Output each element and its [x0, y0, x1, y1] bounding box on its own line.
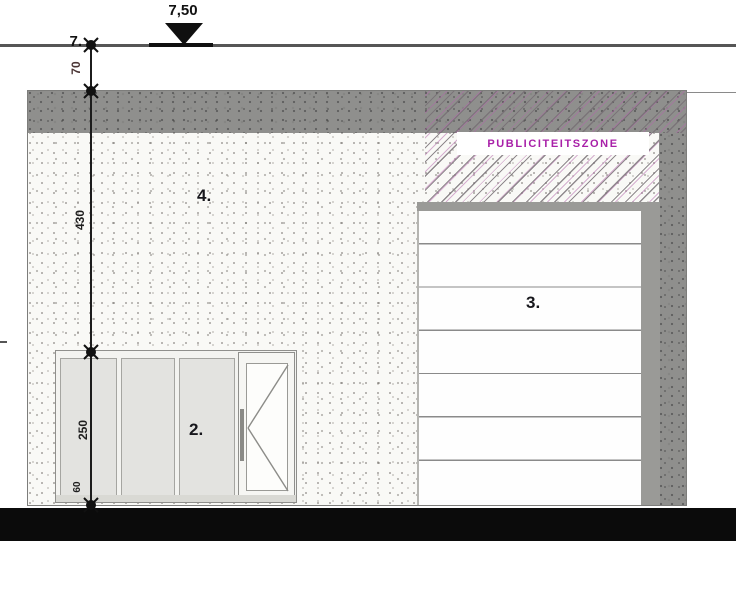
gate-panels: [417, 211, 641, 505]
left-edge-tick: [0, 341, 7, 343]
dimension-parapet: 70: [66, 48, 86, 88]
door-glass: [246, 363, 288, 491]
level-marker-icon: [165, 23, 203, 45]
sectional-gate: [417, 202, 660, 505]
part-label-sectional-door: 3.: [526, 293, 540, 313]
level-marker-base: [149, 43, 213, 47]
part-label-storefront: 2.: [189, 420, 203, 440]
part-label-wall: 4.: [197, 186, 211, 206]
gate-lintel: [417, 202, 660, 211]
entrance-door: [238, 352, 295, 502]
level-line-750: [0, 44, 736, 47]
facade-elevation-drawing: 7,50 PUBLICITEITSZONE: [0, 0, 736, 591]
dimension-upper-wall: 430: [70, 195, 90, 245]
gate-right-jamb: [641, 211, 660, 505]
dimension-plinth: 60: [69, 468, 87, 506]
glazing-panel: [121, 358, 175, 496]
level-value-label: 7,50: [147, 2, 219, 19]
publicity-zone-label: PUBLICITEITSZONE: [487, 138, 618, 150]
door-handle-icon: [240, 409, 244, 461]
publicity-zone-labelbox: PUBLICITEITSZONE: [457, 132, 649, 155]
dimension-marker-icon: [82, 343, 100, 361]
wall-top-extension-line: [686, 92, 736, 93]
ground-strip: [0, 508, 736, 541]
glazing-panel: [179, 358, 235, 496]
door-swing-icon: [247, 364, 289, 492]
dimension-storefront-height: 250: [73, 405, 93, 455]
